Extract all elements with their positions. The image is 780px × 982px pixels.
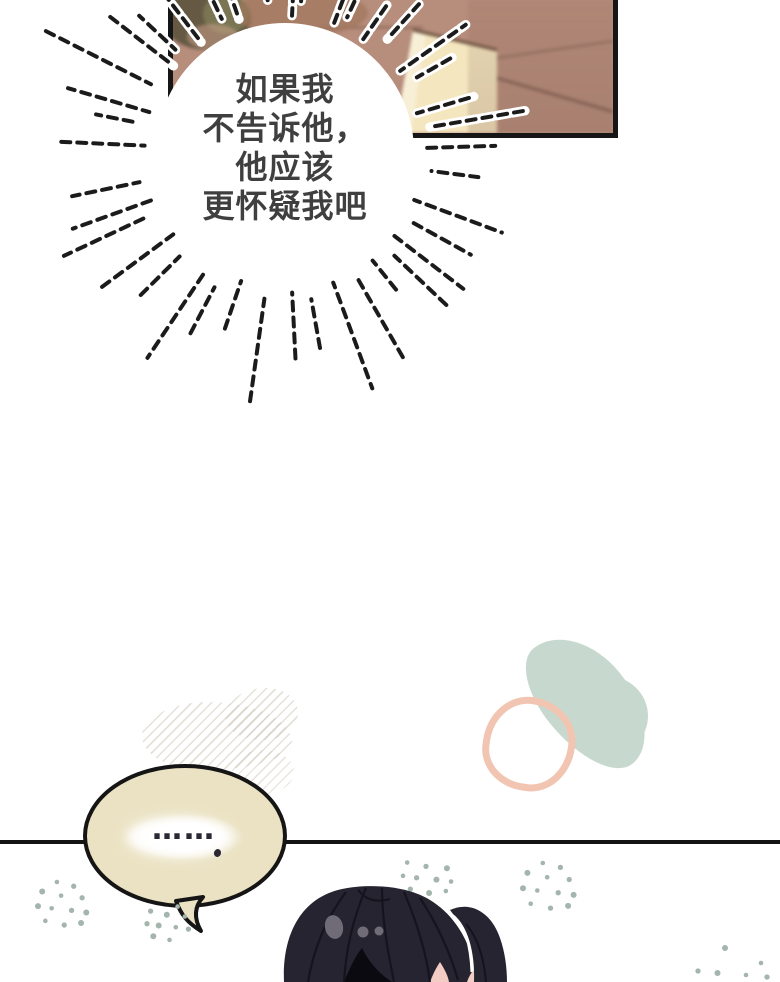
stipple-dot [449, 879, 454, 884]
burst-ray [394, 236, 463, 289]
character-hair [284, 886, 477, 982]
burst-ray [292, 293, 295, 360]
stipple-dot [167, 938, 172, 943]
stipple-dot [541, 861, 546, 866]
pink-smudge [187, 24, 239, 50]
burst-ray [394, 256, 447, 306]
character-skin-sliver [467, 968, 479, 982]
hatch-decor [226, 688, 298, 740]
stipple-dot [548, 905, 553, 910]
stipple-dot [556, 890, 561, 895]
stipple-dot [444, 889, 449, 894]
burst-ray [373, 261, 400, 294]
hair-gap-line [454, 908, 473, 972]
stipple-dot [423, 864, 428, 869]
burst-ray [333, 283, 372, 389]
stipple-dot [565, 903, 571, 909]
burst-ray [359, 280, 406, 362]
stipple-dot [571, 892, 577, 898]
stipple-dot [35, 903, 41, 909]
green-blob-decor [566, 676, 648, 756]
burst-ray [225, 281, 241, 329]
character-ponytail [450, 907, 507, 982]
stipple-dot [444, 865, 450, 871]
burst-ray [394, 236, 463, 289]
ponytail-strand-line [466, 924, 486, 982]
hair-highlight [323, 913, 346, 940]
burst-ray [225, 281, 241, 329]
stipple-dot [405, 860, 410, 865]
wall-shading [468, 0, 613, 133]
burst-ray [359, 280, 406, 362]
hair-shadow-gap [344, 948, 392, 982]
stipple-dot [414, 875, 419, 880]
stipple-dot [759, 961, 764, 966]
burst-ray [189, 287, 215, 336]
burst-ray [414, 223, 471, 255]
stipple-dot [524, 870, 530, 876]
stipple-dot [764, 974, 769, 979]
burst-ray [333, 283, 372, 389]
stipple-dot [62, 922, 67, 927]
stipple-dot [567, 877, 572, 882]
burst-ray [394, 256, 447, 306]
character-head [270, 880, 520, 982]
stipple-dot [545, 875, 550, 880]
stipple-dot [55, 880, 60, 885]
stipple-dot [558, 865, 563, 870]
stipple-dot [744, 973, 749, 978]
stipple-dot [722, 945, 728, 951]
burst-ray [373, 261, 400, 294]
hair-highlight [358, 927, 369, 938]
stipple-dot [695, 968, 700, 973]
stipple-dot [49, 906, 54, 911]
stipple-dot [535, 888, 540, 893]
burst-ray [414, 223, 471, 255]
burst-ray [138, 256, 179, 297]
stipple-dot [715, 970, 721, 976]
thought-line: 他应该 [105, 148, 465, 187]
burst-ray [292, 293, 295, 360]
thought-line: 更怀疑我吧 [105, 187, 465, 226]
burst-ray [138, 256, 179, 297]
character-skin-sliver [430, 962, 449, 982]
stipple-dot [433, 877, 439, 883]
burst-ray [311, 299, 320, 352]
burst-ray [249, 299, 264, 405]
stipple-dot [528, 901, 533, 906]
hair-highlight [375, 927, 384, 936]
stipple-dot [401, 874, 406, 879]
stipple-dot [69, 908, 74, 913]
speech-bubble-tail [176, 897, 203, 931]
burst-ray [249, 299, 264, 405]
stipple-dot [59, 893, 64, 898]
burst-ray [147, 269, 206, 357]
stipple-dot [520, 885, 526, 891]
burst-ray [108, 15, 174, 66]
hair-strand-lines [308, 888, 458, 982]
burst-ray [98, 234, 173, 289]
ellipsis-text: …… [134, 812, 234, 848]
burst-ray [98, 234, 173, 289]
stipple-dot [408, 887, 413, 892]
stipple-dot [43, 919, 48, 924]
thought-text: 如果我 不告诉他， 他应该 更怀疑我吧 [105, 70, 465, 226]
stipple-dot [426, 890, 432, 896]
comic-page: 如果我 不告诉他， 他应该 更怀疑我吧 …… [0, 0, 780, 982]
burst-ray [147, 269, 206, 357]
stipple-dot [71, 884, 76, 889]
burst-ray [108, 15, 174, 66]
stipple-dot [39, 888, 45, 894]
burst-ray [189, 287, 215, 336]
thought-line: 如果我 [105, 70, 465, 109]
burst-ray [311, 299, 320, 352]
thought-line: 不告诉他， [105, 109, 465, 148]
